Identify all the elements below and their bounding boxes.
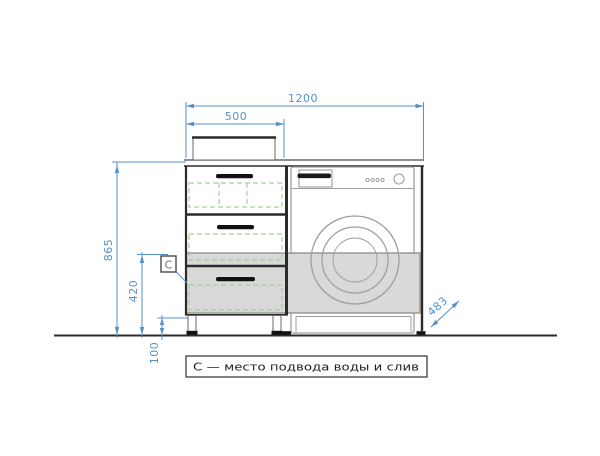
detergent-drawer-handle	[298, 174, 332, 179]
dimension-label: 483	[425, 294, 450, 319]
dimension-label: 500	[225, 110, 248, 123]
cabinet-leg	[188, 316, 196, 332]
leg-foot	[187, 331, 198, 335]
arrow-icon	[115, 165, 119, 173]
arrow-icon	[186, 122, 194, 126]
arrow-icon	[186, 104, 194, 108]
dimension-label: 100	[148, 342, 161, 365]
arrow-icon	[276, 122, 284, 126]
drawer-1-handle	[216, 174, 253, 178]
c-marker-label: С	[165, 259, 173, 272]
dimension-leg-height: 100	[148, 315, 188, 364]
drawer-3-handle	[216, 277, 255, 281]
drawer-1	[189, 174, 282, 207]
basin	[193, 137, 275, 160]
drawer-1-hidden-outline	[189, 183, 282, 207]
arrow-icon	[160, 328, 164, 335]
arrow-icon	[140, 255, 144, 263]
cabinet-leg	[273, 316, 281, 332]
drawer-2-handle	[217, 225, 254, 229]
arrow-icon	[140, 327, 144, 335]
technical-drawing-page: 1200 500 865 420 100 483 С	[0, 0, 600, 456]
arrow-icon	[416, 104, 424, 108]
dimension-total-height: 865	[102, 162, 186, 338]
note: С — место подвода воды и слив	[186, 356, 427, 377]
drawing-canvas: 1200 500 865 420 100 483 С	[0, 0, 600, 456]
dimension-label: 420	[127, 280, 140, 303]
c-marker: С	[161, 256, 187, 283]
dimension-label: 865	[102, 239, 115, 262]
note-text: С — место подвода воды и слив	[193, 361, 419, 374]
arrow-icon	[115, 327, 119, 335]
leg-foot	[272, 331, 283, 335]
dimension-diagonal-depth: 483	[425, 294, 459, 327]
highlight-zone	[186, 253, 420, 313]
arrow-icon	[160, 318, 164, 325]
countertop	[184, 160, 424, 166]
dimension-label: 1200	[288, 92, 318, 105]
